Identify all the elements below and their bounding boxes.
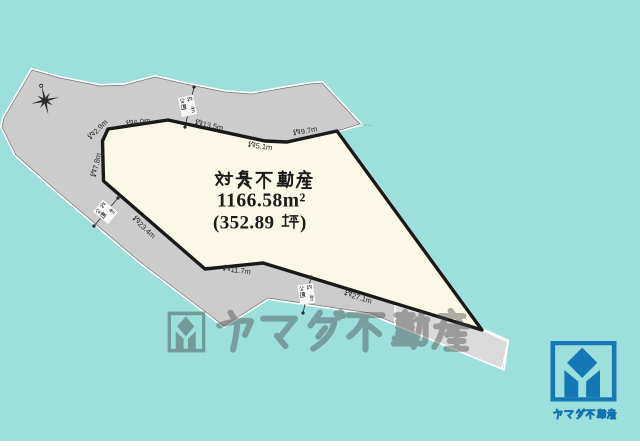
svg-text:): ) (300, 213, 306, 234)
svg-text:(352.89: (352.89 (213, 213, 274, 234)
svg-text:1166.58m²: 1166.58m² (217, 191, 306, 212)
